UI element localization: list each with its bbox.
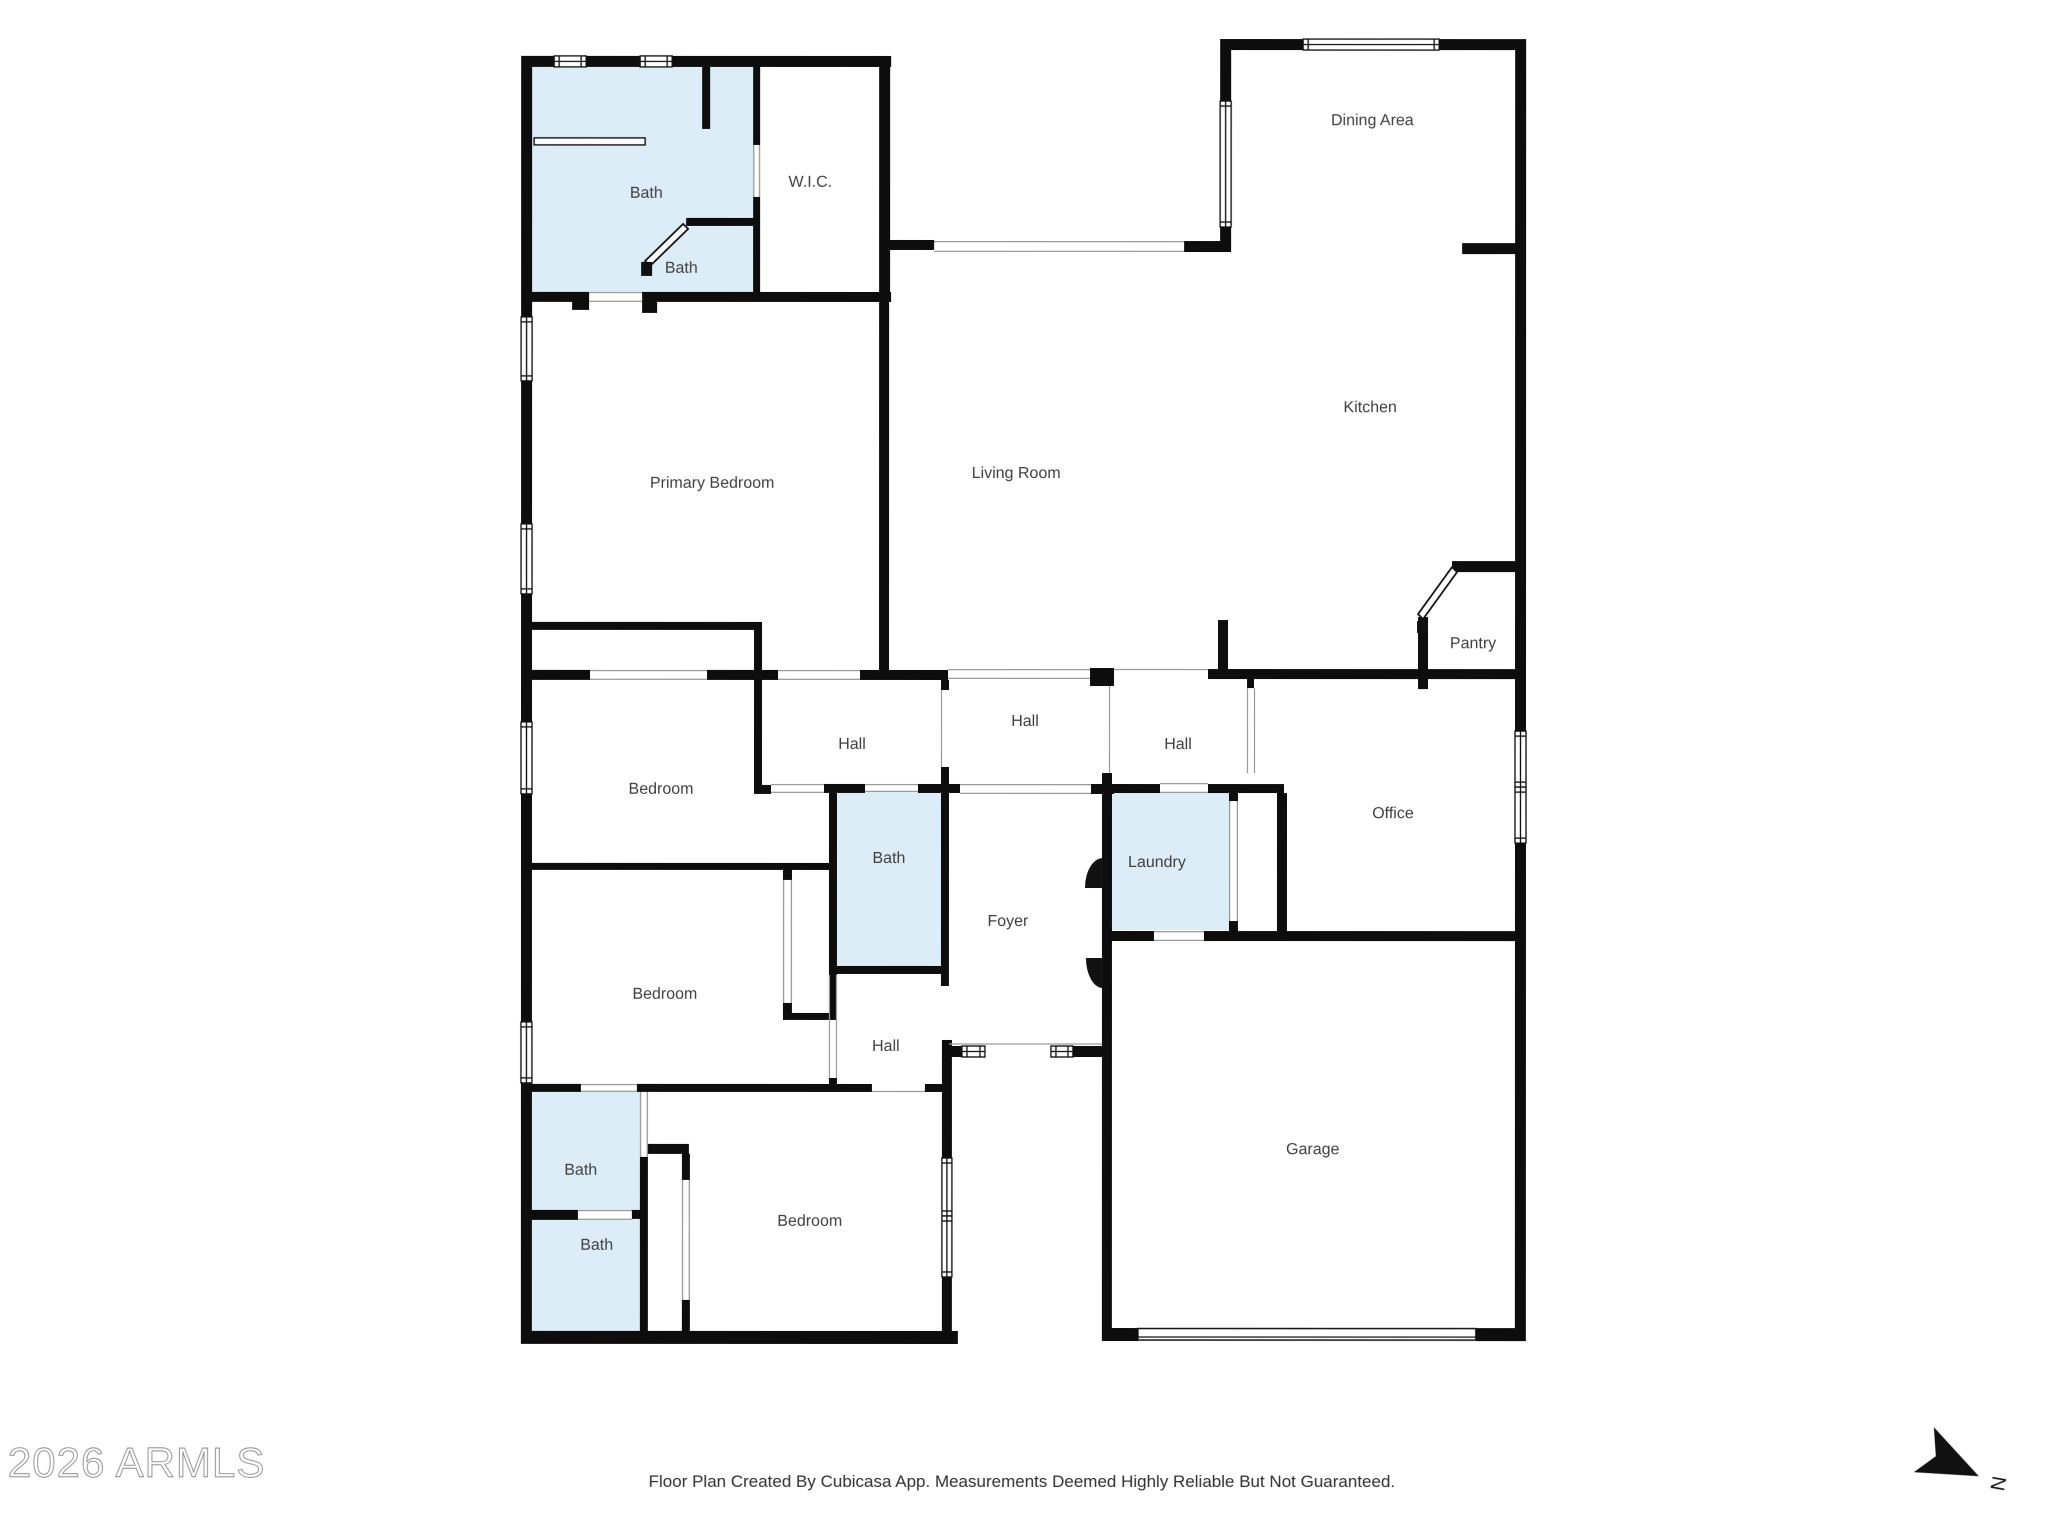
svg-text:Primary Bedroom: Primary Bedroom <box>650 475 774 492</box>
svg-text:Bedroom: Bedroom <box>629 781 694 798</box>
svg-text:Hall: Hall <box>872 1038 900 1055</box>
svg-text:W.I.C.: W.I.C. <box>789 174 833 191</box>
svg-text:Bath: Bath <box>630 185 663 202</box>
svg-text:Hall: Hall <box>1164 736 1192 753</box>
svg-text:Bedroom: Bedroom <box>777 1213 842 1230</box>
svg-text:Bath: Bath <box>665 260 698 277</box>
svg-text:Kitchen: Kitchen <box>1344 399 1397 416</box>
svg-text:Living Room: Living Room <box>972 465 1061 482</box>
svg-text:Bath: Bath <box>580 1237 613 1254</box>
svg-text:Garage: Garage <box>1286 1141 1339 1158</box>
svg-text:Bedroom: Bedroom <box>632 986 697 1003</box>
svg-text:Hall: Hall <box>838 736 866 753</box>
svg-text:2026 ARMLS: 2026 ARMLS <box>8 1439 266 1486</box>
svg-text:Laundry: Laundry <box>1128 854 1186 871</box>
svg-text:Dining Area: Dining Area <box>1331 112 1414 129</box>
svg-text:Foyer: Foyer <box>987 913 1029 930</box>
svg-text:Office: Office <box>1372 805 1414 822</box>
svg-text:Pantry: Pantry <box>1450 635 1496 652</box>
svg-text:Floor Plan Created By Cubicasa: Floor Plan Created By Cubicasa App. Meas… <box>649 1472 1396 1491</box>
svg-text:Bath: Bath <box>872 850 905 867</box>
svg-text:Hall: Hall <box>1011 713 1039 730</box>
svg-text:Bath: Bath <box>564 1162 597 1179</box>
